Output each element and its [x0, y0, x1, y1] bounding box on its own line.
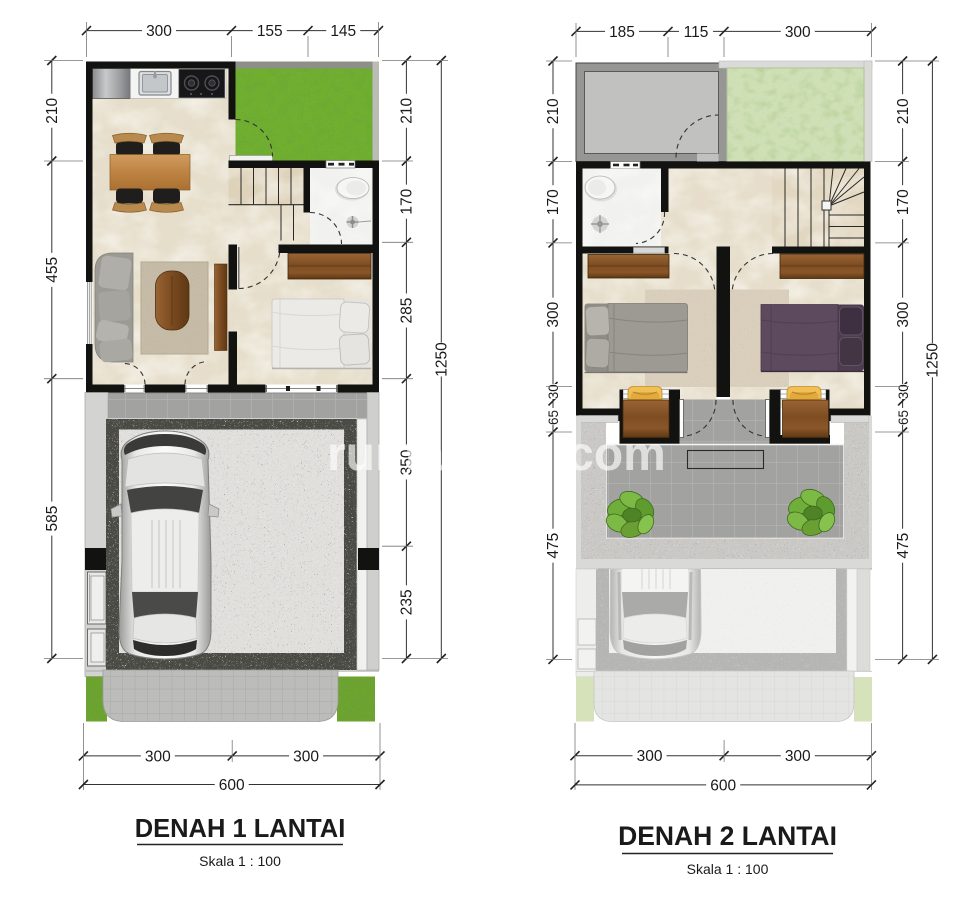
svg-text:65: 65: [546, 410, 561, 425]
svg-text:Skala 1 : 100: Skala 1 : 100: [199, 853, 281, 869]
svg-text:rumah123.com: rumah123.com: [327, 428, 666, 481]
svg-text:300: 300: [293, 748, 319, 765]
svg-text:475: 475: [895, 533, 912, 559]
svg-text:300: 300: [146, 23, 172, 40]
svg-text:1250: 1250: [925, 343, 942, 378]
svg-text:600: 600: [219, 777, 245, 794]
svg-text:210: 210: [545, 98, 562, 124]
svg-text:DENAH 2 LANTAI: DENAH 2 LANTAI: [618, 821, 837, 851]
svg-text:155: 155: [257, 23, 283, 40]
svg-text:185: 185: [609, 24, 635, 41]
svg-text:300: 300: [895, 301, 912, 327]
svg-text:170: 170: [399, 188, 416, 214]
svg-text:115: 115: [684, 24, 709, 41]
svg-text:300: 300: [785, 748, 811, 765]
svg-text:235: 235: [399, 589, 416, 615]
svg-text:210: 210: [399, 97, 416, 123]
svg-text:585: 585: [44, 506, 61, 532]
svg-text:210: 210: [895, 98, 912, 124]
svg-text:455: 455: [44, 257, 61, 283]
svg-text:300: 300: [145, 748, 171, 765]
svg-text:145: 145: [330, 23, 356, 40]
svg-text:170: 170: [895, 189, 912, 215]
svg-text:300: 300: [545, 301, 562, 327]
svg-text:Skala 1 : 100: Skala 1 : 100: [687, 861, 769, 877]
svg-text:285: 285: [399, 298, 416, 324]
svg-text:DENAH 1 LANTAI: DENAH 1 LANTAI: [135, 815, 346, 843]
svg-text:300: 300: [637, 748, 663, 765]
svg-text:210: 210: [44, 97, 61, 123]
svg-text:65: 65: [896, 410, 911, 425]
svg-text:1250: 1250: [434, 342, 451, 377]
svg-text:170: 170: [545, 189, 562, 215]
svg-text:475: 475: [545, 533, 562, 559]
svg-text:600: 600: [710, 777, 736, 794]
svg-text:300: 300: [785, 24, 811, 41]
